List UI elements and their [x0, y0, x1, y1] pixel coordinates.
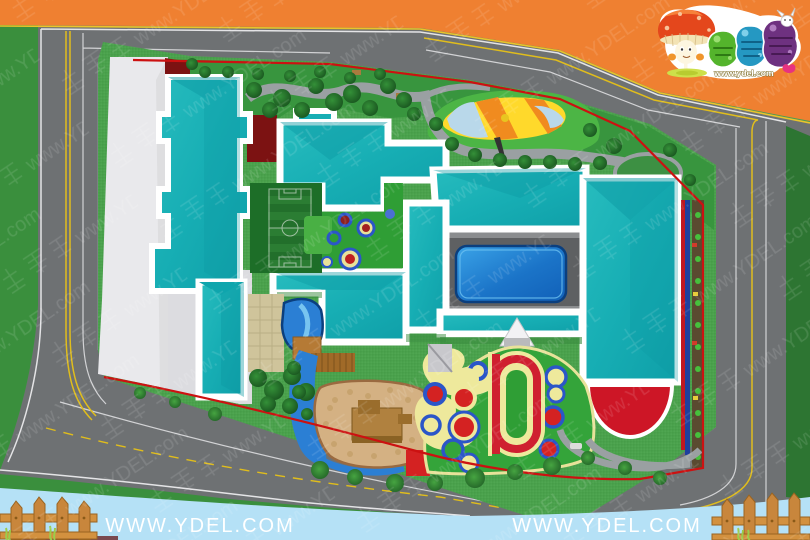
svg-text:www.ydel.com: www.ydel.com: [713, 68, 774, 78]
